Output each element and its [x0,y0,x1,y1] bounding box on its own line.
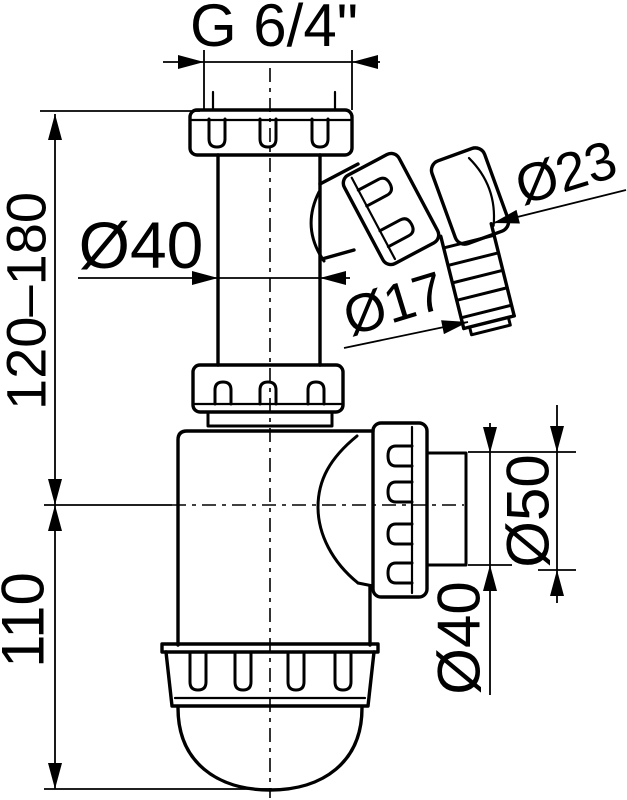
hose-connector-large-step [429,145,512,247]
bottom-nut-slot [288,652,304,690]
dimension-hose-large: Ø23 [493,129,626,223]
outlet-nut-slot [388,482,412,502]
body-outlet-intersection-curve [318,436,358,583]
arrowhead [48,763,62,789]
connector-shoulder-bottom [322,250,354,259]
outlet-pipe-label: Ø40 [426,581,493,694]
arrowhead [48,479,62,505]
outlet-shoulder-bottom [358,583,373,586]
arrowhead [48,114,62,140]
height-body-label: 110 [0,572,57,668]
outlet-socket-stub [427,453,466,565]
top-thread-label: G 6/4" [190,0,358,59]
hose-small-label: Ø17 [336,260,451,347]
trap-body [178,431,373,645]
bottom-nut-slot [335,652,351,690]
height-adjustable-label: 120–180 [0,192,58,410]
outlet-union-nut [373,423,466,597]
arrowhead [320,271,346,285]
dimension-inlet-diameter: Ø40 [78,208,350,285]
middle-nut-slot [260,382,276,404]
outlet-nut-slot [388,446,412,466]
outlet-socket-label: Ø50 [495,454,562,567]
technical-drawing-canvas: G 6/4" Ø40 Ø23 Ø17 Ø50 Ø40 [0,0,627,800]
thread-stub-lines [213,92,335,110]
outlet-nut-slot [388,524,412,544]
top-nut-slot [312,119,328,147]
inlet-diameter-label: Ø40 [79,208,204,282]
body-top-and-left-wall [178,431,373,645]
inlet-pipe-walls [218,155,320,365]
arrowhead [48,505,62,531]
dimension-outlet-socket: Ø50 [468,405,576,603]
hose-large-label: Ø23 [508,129,623,216]
arrowhead [550,426,564,452]
dimension-outlet-pipe: Ø40 [426,423,498,695]
bottom-nut-slot [190,652,206,690]
arrowhead [483,427,497,453]
hose-connector-ribbed-tail [441,224,516,337]
connector-joint-curve [311,192,324,261]
dimension-hose-small: Ø17 [336,260,468,348]
arrowhead [550,570,564,596]
middle-union-nut [193,365,343,426]
dimension-top-thread: G 6/4" [163,0,380,110]
outlet-nut-slot [388,563,412,583]
outlet-nut-outline [373,423,427,597]
top-nut-slot [260,119,276,147]
top-thread-dim-lines [163,50,380,110]
top-nut-slot [209,119,225,147]
siphon-technical-drawing: G 6/4" Ø40 Ø23 Ø17 Ø50 Ø40 [0,0,627,800]
bottom-nut-slot [235,652,251,690]
top-union-nut [190,110,352,155]
middle-nut-slot [308,382,324,404]
hose-tail-ribs [444,235,512,317]
middle-nut-slot [215,382,231,404]
